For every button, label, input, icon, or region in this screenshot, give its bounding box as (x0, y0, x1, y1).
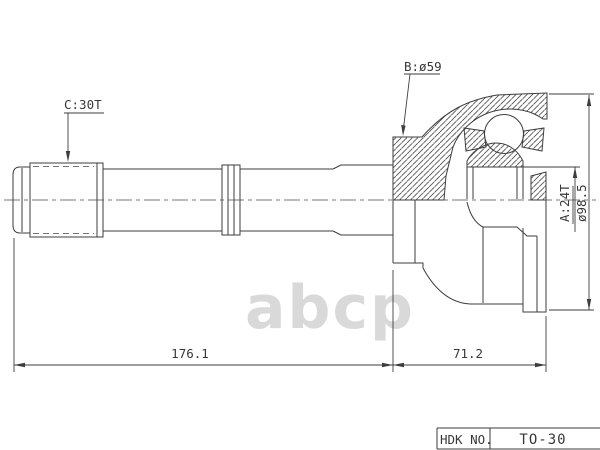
part-number: TO-30 (519, 432, 566, 448)
boot-diameter-text: B:ø59 (404, 59, 442, 74)
joint-length-text: 71.2 (453, 346, 483, 361)
cv-joint-drawing-page: abcp (0, 0, 600, 450)
cv-joint-technical-drawing: abcp (0, 0, 600, 450)
spline-outer-text: A:24T (557, 184, 572, 222)
shaft-length-text: 176.1 (171, 346, 209, 361)
cv-joint-housing-section (393, 93, 547, 200)
cv-joint-housing-external (393, 200, 546, 312)
label-spline-left: C:30T (64, 97, 104, 162)
title-block: HDK NO. TO-30 (437, 428, 600, 449)
title-block-field-label: HDK NO. (440, 432, 493, 447)
watermark-text: abcp (245, 273, 415, 343)
dimension-outer-diameter: A:24T ø98.5 (523, 94, 594, 310)
cage-section-right (522, 128, 544, 151)
outer-diameter-text: ø98.5 (574, 184, 589, 222)
spline-left-text: C:30T (64, 97, 102, 112)
